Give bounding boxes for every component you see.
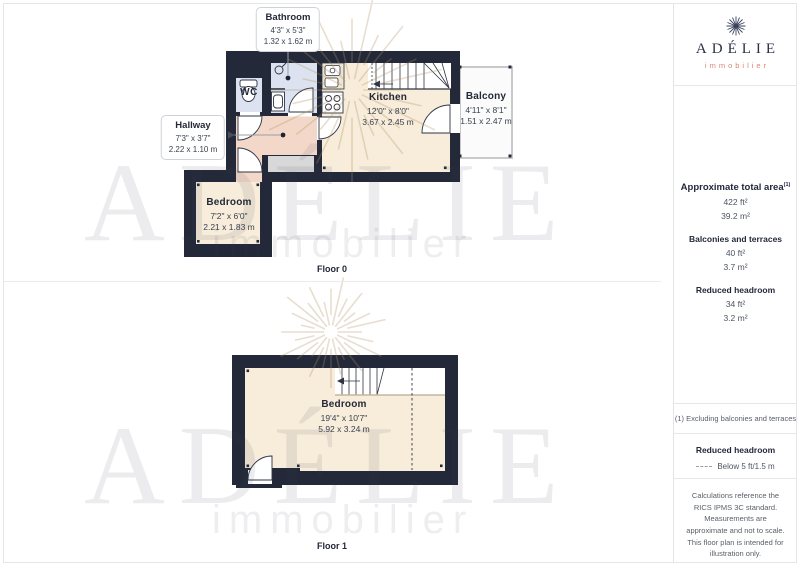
sidebar-divider-4 bbox=[674, 478, 797, 479]
sidebar-divider-3 bbox=[674, 433, 797, 434]
kitchen-counter bbox=[322, 63, 344, 89]
floor0-plan bbox=[0, 0, 663, 281]
footnote: (1) Excluding balconies and terraces bbox=[674, 414, 797, 423]
hallway-callout: Hallway 7'3" x 3'7" 2.22 x 1.10 m bbox=[161, 115, 225, 160]
area-value-m: 39.2 m² bbox=[674, 211, 797, 221]
bedroom-floor1-room-label: Bedroom 19'4" x 10'7" 5.92 x 3.24 m bbox=[318, 398, 370, 435]
area-value-ft: 422 ft² bbox=[674, 197, 797, 207]
floor-divider bbox=[4, 281, 661, 282]
balconies-value-ft: 40 ft² bbox=[674, 248, 797, 258]
wc-room-label: WC bbox=[240, 87, 258, 98]
kitchen-metric: 3.67 x 2.45 m bbox=[362, 117, 414, 127]
legend-label: Below 5 ft/1.5 m bbox=[717, 462, 774, 471]
kitchen-room-label: Kitchen 12'0" x 8'0" 3.67 x 2.45 m bbox=[362, 91, 414, 128]
sidebar-logo: ADÉLIE immobilier bbox=[674, 15, 797, 70]
headroom-value-ft: 34 ft² bbox=[674, 299, 797, 309]
floor1-caption: Floor 1 bbox=[317, 541, 347, 551]
bedroom-floor1-title: Bedroom bbox=[318, 398, 370, 412]
hallway-callout-imperial: 7'3" x 3'7" bbox=[176, 134, 211, 143]
bedroom-floor0-metric: 2.21 x 1.83 m bbox=[203, 222, 255, 232]
legend-title: Reduced headroom bbox=[674, 445, 797, 455]
staircase-floor0 bbox=[368, 63, 451, 89]
headroom-title: Reduced headroom bbox=[674, 285, 797, 295]
headroom-value-m: 3.2 m² bbox=[674, 313, 797, 323]
sidebar: ADÉLIE immobilier Approximate total area… bbox=[661, 3, 797, 563]
area-stats: Approximate total area(1) 422 ft² 39.2 m… bbox=[674, 182, 797, 323]
logo-title: ADÉLIE bbox=[679, 41, 797, 58]
sidebar-divider-1 bbox=[674, 85, 797, 86]
kitchen-imperial: 12'0" x 8'0" bbox=[367, 106, 409, 116]
sidebar-divider-2 bbox=[674, 403, 797, 404]
legal-text: Calculations reference the RICS IPMS 3C … bbox=[674, 490, 797, 560]
area-superscript: (1) bbox=[784, 182, 791, 188]
legal-block: Calculations reference the RICS IPMS 3C … bbox=[674, 490, 797, 566]
bedroom-floor0-room-label: Bedroom 7'2" x 6'0" 2.21 x 1.83 m bbox=[203, 196, 255, 233]
floor0-caption: Floor 0 bbox=[317, 264, 347, 274]
balconies-title: Balconies and terraces bbox=[674, 234, 797, 244]
kitchen-title: Kitchen bbox=[362, 91, 414, 105]
logo-subtitle: immobilier bbox=[677, 61, 797, 70]
balcony-room-label: Balcony 4'11" x 8'1" 1.51 x 2.47 m bbox=[460, 90, 512, 127]
bedroom-floor1-imperial: 19'4" x 10'7" bbox=[321, 413, 368, 423]
bathroom-callout-imperial: 4'3" x 5'3" bbox=[271, 26, 306, 35]
staircase-floor1 bbox=[335, 368, 445, 395]
hallway-callout-title: Hallway bbox=[169, 119, 217, 132]
balcony-imperial: 4'11" x 8'1" bbox=[465, 105, 506, 115]
sink-icon bbox=[272, 92, 285, 111]
balcony-metric: 1.51 x 2.47 m bbox=[460, 116, 512, 126]
hallway-callout-metric: 2.22 x 1.10 m bbox=[169, 145, 217, 154]
bathroom-callout-metric: 1.32 x 1.62 m bbox=[264, 37, 312, 46]
area-title: Approximate total area(1) bbox=[674, 182, 797, 193]
bedroom-floor1-metric: 5.92 x 3.24 m bbox=[318, 424, 370, 434]
legend-row: Below 5 ft/1.5 m bbox=[674, 462, 797, 471]
sidebar-card: ADÉLIE immobilier Approximate total area… bbox=[673, 3, 797, 563]
headroom-legend: Reduced headroom Below 5 ft/1.5 m bbox=[674, 445, 797, 471]
logo-star-icon bbox=[725, 15, 747, 37]
balconies-value-m: 3.7 m² bbox=[674, 262, 797, 272]
bathroom-callout-title: Bathroom bbox=[264, 11, 312, 24]
stove-icon bbox=[322, 92, 343, 113]
bedroom-floor0-title: Bedroom bbox=[203, 196, 255, 210]
bathroom-callout: Bathroom 4'3" x 5'3" 1.32 x 1.62 m bbox=[256, 7, 320, 52]
dashed-line-swatch bbox=[696, 466, 712, 468]
bedroom-floor0-imperial: 7'2" x 6'0" bbox=[210, 211, 247, 221]
floorplan-page: ADÉLIE immobilier ADÉLIE immobilier Bath… bbox=[0, 0, 800, 566]
balcony-title: Balcony bbox=[460, 90, 512, 104]
